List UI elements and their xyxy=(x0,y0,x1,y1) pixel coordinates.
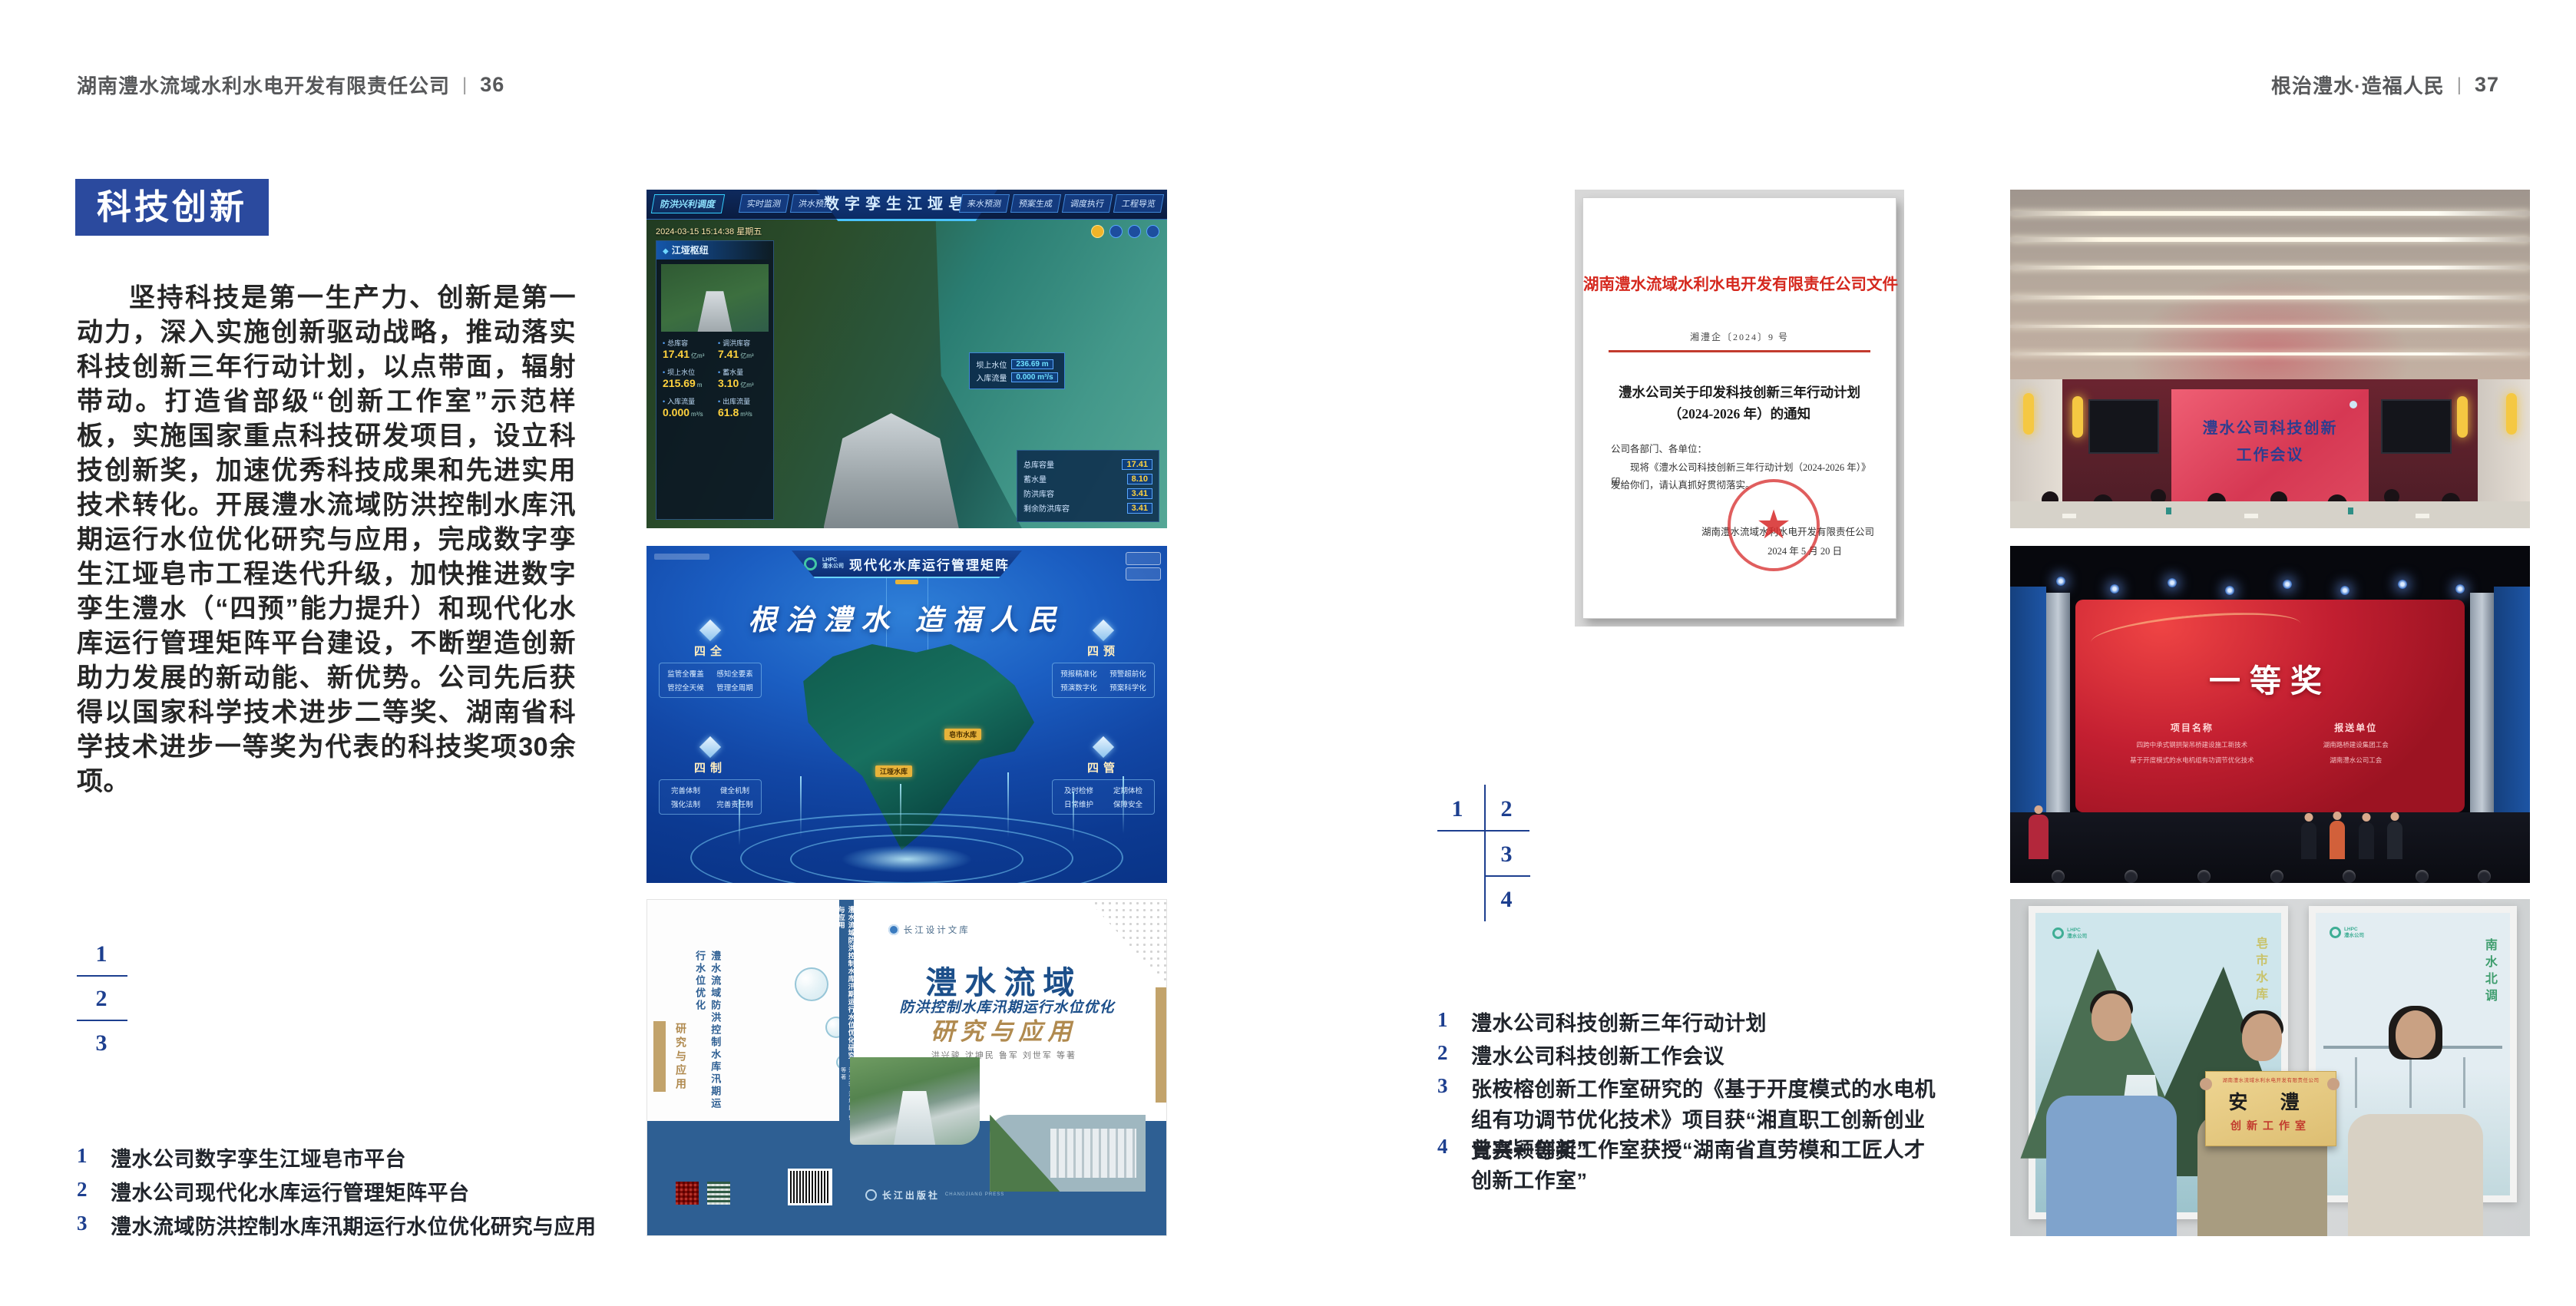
figure-index-1: 1 xyxy=(84,941,118,967)
person-left xyxy=(2046,994,2176,1236)
station-panel: ◆江垭枢纽 总库容17.41亿m³ 调洪库容7.41亿m³ 坝上水位215.69… xyxy=(656,240,774,520)
official-seal xyxy=(1728,479,1820,571)
awardee-figure xyxy=(2387,822,2402,859)
photo-digital-twin-platform: 防洪兴利调度 实时监测 洪水预报 防汛预警 数字孪生江垭皂市 来水预测 预案生成… xyxy=(646,190,1167,528)
stage-floor xyxy=(2010,812,2530,883)
photo-innovation-studio-group: LHPC澧水公司 皂市水库 LHPC澧水公司 南水北调 xyxy=(2010,899,2530,1236)
teacup xyxy=(2348,508,2353,514)
menu-flood-dispatch[interactable]: 防洪兴利调度 xyxy=(651,194,725,213)
red-rule xyxy=(1609,350,1871,352)
column-submitting-unit: 报送单位 xyxy=(2293,721,2418,734)
header-right: 根治澧水·造福人民 | 37 xyxy=(2271,71,2499,99)
capacity-panel: 总库容量17.41 蓄水量8.10 防洪库容3.41 剩余防洪库容3.41 xyxy=(1017,450,1159,522)
tab-inflow-forecast[interactable]: 来水预测 xyxy=(959,194,1010,213)
tab-project-tour[interactable]: 工程导览 xyxy=(1113,194,1164,213)
photo-award-ceremony: 一等奖 项目名称 四跨中承式钢拱架吊桥建设施工新技术 基于开度模式的水电机组有功… xyxy=(2010,546,2530,883)
awardee-figure xyxy=(2330,821,2345,859)
papers xyxy=(2244,514,2258,518)
tab-dispatch-execute[interactable]: 调度执行 xyxy=(1062,194,1113,213)
lhpc-logo-icon xyxy=(2052,927,2064,939)
front-accent-bar xyxy=(1156,987,1166,1103)
cube-icon xyxy=(1093,620,1114,641)
figure-index-1: 1 xyxy=(1440,796,1474,822)
wall-lamp xyxy=(2072,396,2083,438)
index-divider xyxy=(77,975,127,977)
map-marker-jiangya[interactable]: 江垭水库 xyxy=(875,765,912,777)
quadrant-sizhi: 四制 完善体制健全机制 强化法制完善责任制 xyxy=(659,739,762,815)
matrix-header: LHPC澧水公司 现代化水库运行管理矩阵 xyxy=(792,551,1022,578)
photo-innovation-meeting: 澧水公司科技创新 工作会议 xyxy=(2010,190,2530,528)
person-right xyxy=(2348,1010,2483,1236)
slogan-text: 根治澧水·造福人民 xyxy=(2271,71,2445,99)
screen-title-line2: 工作会议 xyxy=(2171,442,2369,465)
conference-table xyxy=(2010,501,2530,528)
stage-fixture xyxy=(2125,870,2138,883)
quadrant-siquan: 四全 监管全覆盖感知全要素 管控全天候管理全周期 xyxy=(659,623,762,698)
stage-fixture xyxy=(2270,870,2283,883)
stage-fixture xyxy=(2416,870,2429,883)
page-number-left: 36 xyxy=(480,73,504,97)
host-figure xyxy=(2029,815,2049,859)
document-sheet: 湖南澧水流域水利水电开发有限责任公司文件 湘澧企〔2024〕9 号 澧水公司关于… xyxy=(1582,197,1896,619)
lhpc-logo: LHPC澧水公司 xyxy=(2052,927,2087,939)
header-divider: | xyxy=(462,74,468,96)
caption-left-1: 1 澧水公司数字孪生江垭皂市平台 xyxy=(77,1144,406,1175)
index-divider-vertical xyxy=(1484,785,1486,921)
document-redhead: 湖南澧水流域水利水电开发有限责任公司文件 xyxy=(1583,271,1896,294)
lhpc-logo-icon xyxy=(2330,927,2341,938)
poster-right-calligraphy: 南水北调 xyxy=(2480,938,2498,1006)
poster-left-calligraphy: 皂市水库 xyxy=(2250,937,2269,1004)
water-droplet xyxy=(795,967,828,1001)
company-name: 湖南澧水流域水利水电开发有限责任公司 xyxy=(77,71,450,99)
stage-fixture xyxy=(2197,870,2211,883)
document-title-line1: 澧水公司关于印发科技创新三年行动计划 xyxy=(1583,382,1896,402)
plaque-subtitle: 创新工作室 xyxy=(2206,1118,2336,1133)
wall-lamp xyxy=(2023,393,2034,435)
matrix-title: 现代化水库运行管理矩阵 xyxy=(849,554,1010,574)
dam-spillway-photo xyxy=(850,1057,980,1145)
stage-light xyxy=(2056,577,2065,586)
photo-management-matrix-platform: LHPC澧水公司 现代化水库运行管理矩阵 根治澧水 造福人民 皂市水库 江垭水库… xyxy=(646,546,1167,883)
station-stats: 总库容17.41亿m³ 调洪库容7.41亿m³ 坝上水位215.69m 蓄水量3… xyxy=(656,336,773,420)
station-name: 江垭枢纽 xyxy=(672,245,709,256)
map-marker-zaoshi[interactable]: 皂市水库 xyxy=(944,729,981,740)
isbn-barcode xyxy=(788,1169,832,1205)
stage-light xyxy=(2283,580,2292,589)
papers xyxy=(2416,514,2429,518)
dashboard-timestamp: 2024-03-15 15:14:38 星期五 xyxy=(656,225,762,237)
hand xyxy=(2327,1078,2340,1090)
stage-light xyxy=(2168,578,2177,587)
wall-lamp xyxy=(2506,393,2517,435)
papers xyxy=(2062,514,2076,518)
matrix-timestamp xyxy=(654,554,709,560)
qr-code-green xyxy=(707,1182,730,1205)
wall-tv xyxy=(2088,399,2159,453)
light-strip xyxy=(2010,296,2530,299)
series-logo: 长江设计文库 xyxy=(888,924,971,936)
document-title-line2: （2024-2026 年）的通知 xyxy=(1583,404,1896,423)
stage-light xyxy=(2110,584,2119,593)
figure-index-3: 3 xyxy=(1490,841,1523,868)
caption-left-2: 2 澧水公司现代化水库运行管理矩阵平台 xyxy=(77,1178,470,1208)
back-vertical-subtitle: 研究与应用 xyxy=(673,1023,689,1115)
plaque-org-line: 湖南澧水流域水利水电开发有限责任公司 xyxy=(2206,1076,2336,1083)
photo-book-cover: 澧水流域防洪控制水库汛期运行水位优化 研究与应用 澧水流域防洪控制水库汛期运行水… xyxy=(646,899,1167,1236)
menu-button[interactable] xyxy=(1126,567,1161,580)
awardee-figure xyxy=(2301,822,2316,859)
back-vertical-title: 澧水流域防洪控制水库汛期运行水位优化 xyxy=(692,951,723,1112)
settings-icon[interactable] xyxy=(1146,225,1159,238)
back-accent-bar xyxy=(653,1021,666,1092)
section-body-text: 坚持科技是第一生产力、创新是第一动力，深入实施创新驱动战略，推动落实科技创新三年… xyxy=(77,281,576,799)
index-divider xyxy=(77,1020,127,1021)
droplet-icon: ◆ xyxy=(663,247,669,256)
light-strip xyxy=(2010,352,2530,355)
stage-light xyxy=(2340,586,2349,595)
awardee-figure xyxy=(2359,822,2374,859)
alert-icon[interactable] xyxy=(1091,225,1104,238)
map-info-tag: 坝上水位236.69 m 入库流量0.000 m³/s xyxy=(969,352,1064,389)
publisher-icon xyxy=(865,1189,877,1201)
plaque-name: 安 澧 xyxy=(2206,1087,2336,1115)
lhpc-logo: LHPC澧水公司 xyxy=(2330,927,2364,938)
document-body-line2: 发给你们，请认真抓好贯彻落实。 xyxy=(1611,477,1874,491)
stage-light xyxy=(2225,586,2234,595)
holo-glow xyxy=(842,845,972,873)
cube-icon xyxy=(699,736,721,758)
award-title: 一等奖 xyxy=(2075,655,2465,701)
caption-right-1: 1 澧水公司科技创新三年行动计划 xyxy=(1437,1008,1938,1039)
publisher-logo: 长江出版社 CHANGJIANG PRESS xyxy=(865,1189,1004,1202)
light-strip xyxy=(2010,211,2530,216)
globe-icon xyxy=(888,924,899,935)
locate-icon[interactable] xyxy=(1128,225,1141,238)
figure-index-4: 4 xyxy=(1490,887,1523,913)
wall-lamp xyxy=(2457,396,2468,438)
led-screen: 一等奖 项目名称 四跨中承式钢拱架吊桥建设施工新技术 基于开度模式的水电机组有功… xyxy=(2075,600,2465,812)
quadrant-siguan: 四管 及时检修定期体检 日常维护保障安全 xyxy=(1052,739,1155,815)
page-number-right: 37 xyxy=(2475,73,2499,97)
layers-icon[interactable] xyxy=(1109,225,1123,238)
screen-logo xyxy=(2349,401,2357,408)
light-strip xyxy=(2010,266,2530,269)
light-strip xyxy=(2010,237,2530,242)
document-number: 湘澧企〔2024〕9 号 xyxy=(1583,330,1896,343)
caption-right-4: 4 曾兴颖创新工作室获授“湖南省直劳模和工匠人才创新工作室” xyxy=(1437,1135,1938,1196)
tab-realtime-monitor[interactable]: 实时监测 xyxy=(739,194,789,213)
qr-code-red xyxy=(676,1182,699,1205)
header-accent xyxy=(895,580,918,584)
magazine-spread: 湖南澧水流域水利水电开发有限责任公司 | 36 根治澧水·造福人民 | 37 科… xyxy=(0,0,2576,1306)
section-badge: 科技创新 xyxy=(75,179,269,236)
hand xyxy=(2200,1078,2212,1090)
lhpc-logo-icon xyxy=(804,557,817,570)
photo-official-document: 湖南澧水流域水利水电开发有限责任公司文件 湘澧企〔2024〕9 号 澧水公司关于… xyxy=(1575,190,1904,627)
fullscreen-button[interactable] xyxy=(1126,552,1161,565)
book-title-line3: 研究与应用 xyxy=(854,1012,1154,1046)
cube-icon xyxy=(699,620,721,641)
teacup xyxy=(2166,508,2171,514)
stage-light xyxy=(2455,584,2465,593)
quadrant-siyu: 四预 预报精准化预警超前化 预演数字化预案科学化 xyxy=(1052,623,1155,698)
screen-title-line1: 澧水公司科技创新 xyxy=(2171,415,2369,438)
header-left: 湖南澧水流域水利水电开发有限责任公司 | 36 xyxy=(77,71,504,99)
cube-icon xyxy=(1093,736,1114,758)
caption-right-2: 2 澧水公司科技创新工作会议 xyxy=(1437,1041,1938,1072)
toolbar-icons xyxy=(1091,225,1159,238)
ceiling xyxy=(2010,190,2530,379)
header-divider: | xyxy=(2457,74,2462,96)
figure-index-2: 2 xyxy=(84,986,118,1012)
document-salutation: 公司各部门、各单位： xyxy=(1611,441,1707,455)
light-strip xyxy=(2010,325,2530,328)
figure-index-3: 3 xyxy=(84,1030,118,1056)
tab-plan-generate[interactable]: 预案生成 xyxy=(1010,194,1061,213)
studio-plaque: 湖南澧水流域水利水电开发有限责任公司 安 澧 创新工作室 xyxy=(2205,1071,2336,1147)
stage-light xyxy=(2398,580,2407,589)
index-divider xyxy=(1437,830,1529,832)
column-project-name: 项目名称 xyxy=(2130,721,2254,734)
wall-tv xyxy=(2381,399,2452,453)
hydropower-station-photo xyxy=(990,1115,1146,1192)
dam-thumbnail xyxy=(661,264,769,332)
caption-left-3: 3 澧水流域防洪控制水库汛期运行水位优化研究与应用 xyxy=(77,1212,597,1242)
index-divider xyxy=(1484,875,1530,877)
figure-index-2: 2 xyxy=(1490,796,1523,822)
